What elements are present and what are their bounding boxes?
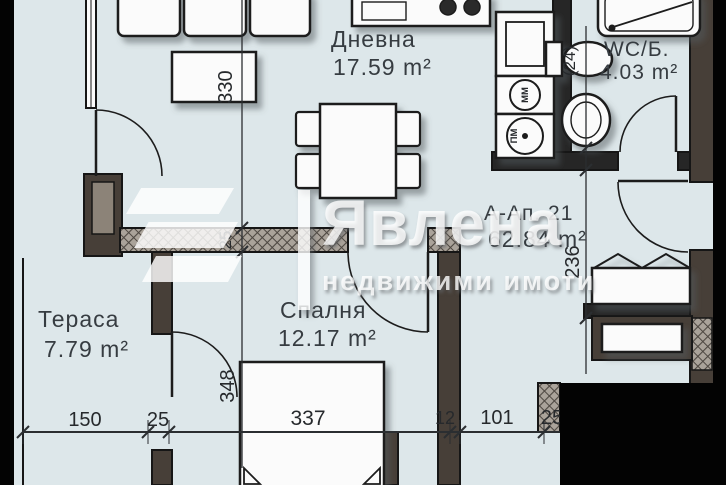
wall-bottom-stub [384,432,398,485]
watermark-brand: Явлена [322,186,562,260]
terrace-area: 7.79 m² [44,336,129,363]
bedroom-name: Спалня [280,297,366,324]
wardrobe [592,254,690,304]
wall-bedroom-left-lower [152,450,172,485]
cooktop-burner [440,0,456,15]
sofa [118,0,310,36]
coffee-table [172,52,256,102]
floor-plan: 150 25 337 12 101 25 330 25 348 (24) 236… [0,0,726,485]
living-room-name: Дневна [331,26,416,53]
dim-330: 330 [215,70,237,103]
dim-150: 150 [68,409,101,431]
dining-table [320,104,396,198]
wc-name: WC/Б. [604,38,669,62]
door-entrance [618,181,688,252]
watermark-tagline: недвижими имоти [322,266,595,297]
shower-cabin [598,0,700,36]
dim-12: 12 [435,408,455,428]
living-room-area: 17.59 m² [333,54,432,81]
terrace-name: Тераса [38,306,119,333]
dim-25a: 25 [147,409,169,431]
bedroom-area: 12.17 m² [278,325,377,352]
dim-337: 337 [290,407,325,430]
wc-area: 4.03 m² [600,61,678,85]
door-wc [620,96,676,152]
kitchen-column [496,12,554,158]
dim-24: (24) [560,46,579,76]
kitchen-counter [352,0,490,26]
dim-101: 101 [480,407,513,429]
dining-set [296,104,420,198]
hall-cabinet [602,324,682,352]
crop-left-band [0,0,14,485]
washer-label: ПМ [509,129,520,144]
cooktop-burner [464,0,480,15]
crop-bottom-right [560,383,726,485]
dishwasher-label: ММ [520,87,531,103]
wall-hatch-column-right [692,318,712,370]
dim-348: 348 [217,369,239,402]
door-living-left [96,110,162,176]
